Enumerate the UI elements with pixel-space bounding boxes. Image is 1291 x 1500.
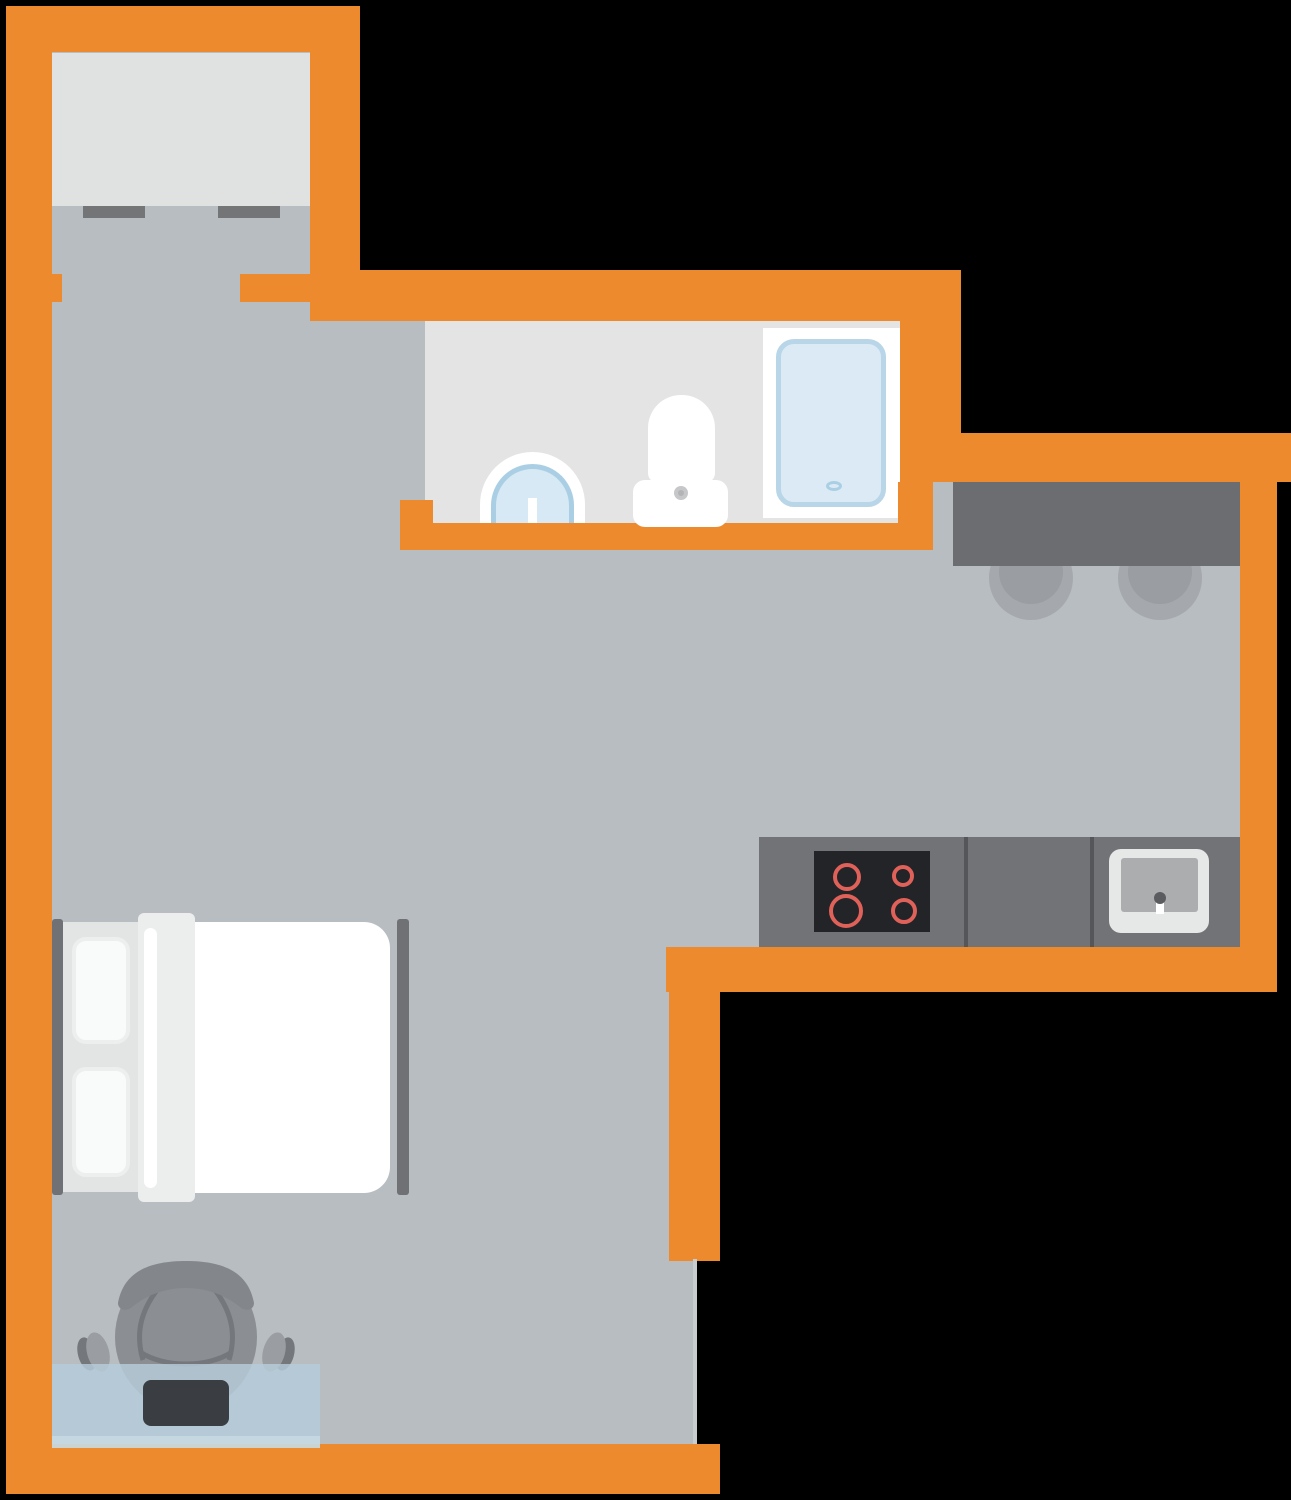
toilet-flush-button-center <box>678 490 684 496</box>
breakfast-bar <box>953 482 1240 566</box>
laptop <box>143 1380 229 1426</box>
office-chair <box>0 0 1291 1500</box>
counter-divider-1 <box>964 837 968 947</box>
burner-bottom-right <box>891 898 917 924</box>
floor-plan <box>0 0 1291 1500</box>
kitchen-faucet-dot <box>1154 892 1166 904</box>
burner-top-right <box>892 865 914 887</box>
toilet-bowl <box>648 395 715 483</box>
burner-top-left <box>833 863 861 891</box>
desk-front-edge <box>52 1436 320 1448</box>
burner-bottom-left <box>829 894 863 928</box>
counter-divider-2 <box>1090 837 1094 947</box>
bathroom-sink-tap <box>528 498 537 523</box>
